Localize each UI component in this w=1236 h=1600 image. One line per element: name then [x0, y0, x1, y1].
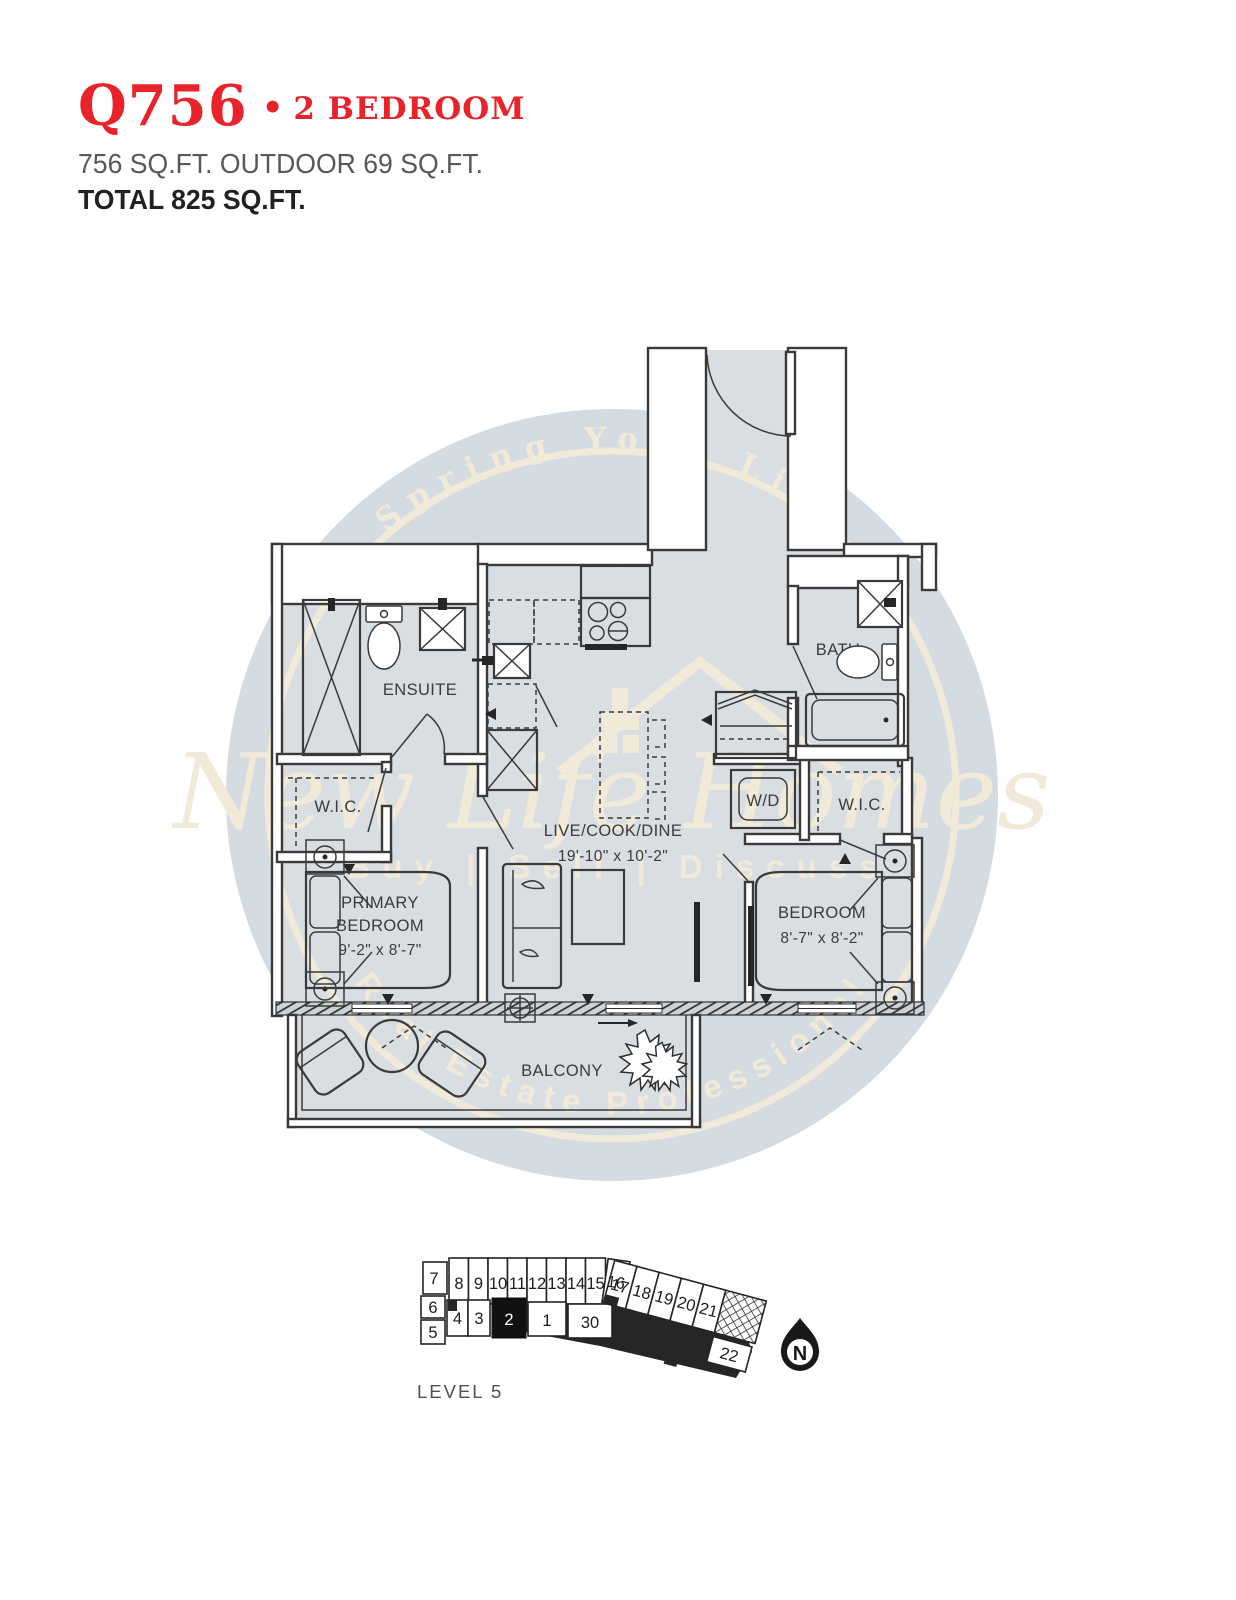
live-cook-dine-dims: 19'-10" x 10'-2": [558, 848, 668, 865]
keyplan-unit-13: 13: [547, 1275, 565, 1293]
floorplan-drawing: Spring Your Life with New Life Homes Buy…: [0, 0, 1236, 1600]
keyplan-unit-15: 15: [586, 1275, 604, 1293]
toilet-icon: [366, 606, 402, 669]
keyplan-unit-11: 11: [509, 1275, 526, 1293]
north-arrow-icon: N: [781, 1318, 819, 1371]
shaft-left: [648, 348, 706, 550]
floorplan-page: Spring Your Life with New Life Homes Buy…: [0, 0, 1236, 1600]
bedroom-dims: 8'-7" x 8'-2": [780, 930, 863, 947]
primary-bedroom-dims: 9'-2" x 8'-7": [338, 942, 421, 959]
balcony-label: BALCONY: [521, 1062, 603, 1080]
bath-sink-icon: [858, 581, 902, 627]
title-separator-dot: •: [262, 88, 284, 128]
north-label: N: [793, 1343, 807, 1365]
level-label: LEVEL 5: [417, 1381, 503, 1402]
area-line: 756 SQ.FT. OUTDOOR 69 SQ.FT.: [78, 150, 503, 178]
keyplan-unit-16: 16: [606, 1273, 627, 1293]
keyplan-unit-4: 4: [453, 1310, 462, 1328]
keyplan: 17 18 19 20 21 22 7 8 9 10 11 12 13 14 1…: [417, 1258, 819, 1412]
wic-right-label: W.I.C.: [838, 796, 885, 814]
shaft-right: [788, 348, 846, 550]
keyplan-unit-1: 1: [542, 1312, 551, 1330]
keyplan-unit-5: 5: [428, 1324, 437, 1342]
entry-door-leaf: [786, 352, 795, 434]
keyplan-unit-12: 12: [528, 1275, 546, 1293]
keyplan-unit-3: 3: [474, 1310, 483, 1328]
keyplan-unit-14: 14: [567, 1275, 585, 1293]
primary-bedroom-label-1: PRIMARY: [341, 894, 419, 912]
wic-left-label: W.I.C.: [314, 798, 361, 816]
tv-icon: [748, 906, 754, 986]
keyplan-unit-9: 9: [474, 1275, 483, 1293]
bedroom-label: BEDROOM: [778, 904, 866, 922]
keyplan-unit-8: 8: [454, 1275, 463, 1293]
unit-type: 2 BEDROOM: [293, 91, 525, 127]
toilet-icon: [837, 644, 897, 680]
keyplan-unit-30: 30: [581, 1314, 599, 1332]
tv-icon: [694, 902, 700, 982]
unit-code: Q756: [78, 73, 248, 139]
page-title: Q756•2 BEDROOM: [78, 78, 526, 134]
live-cook-dine-label: LIVE/COOK/DINE: [544, 822, 683, 840]
ensuite-label: ENSUITE: [383, 681, 457, 699]
keyplan-unit-10: 10: [489, 1275, 507, 1293]
keyplan-unit-6: 6: [428, 1299, 437, 1317]
header: Q756•2 BEDROOM 756 SQ.FT. OUTDOOR 69 SQ.…: [78, 78, 526, 214]
primary-bedroom-label-2: BEDROOM: [336, 917, 424, 935]
keyplan-unit-7: 7: [429, 1270, 438, 1288]
wd-label: W/D: [746, 792, 779, 810]
total-area-line: TOTAL 825 SQ.FT.: [78, 186, 503, 214]
keyplan-unit-2: 2: [504, 1311, 513, 1329]
